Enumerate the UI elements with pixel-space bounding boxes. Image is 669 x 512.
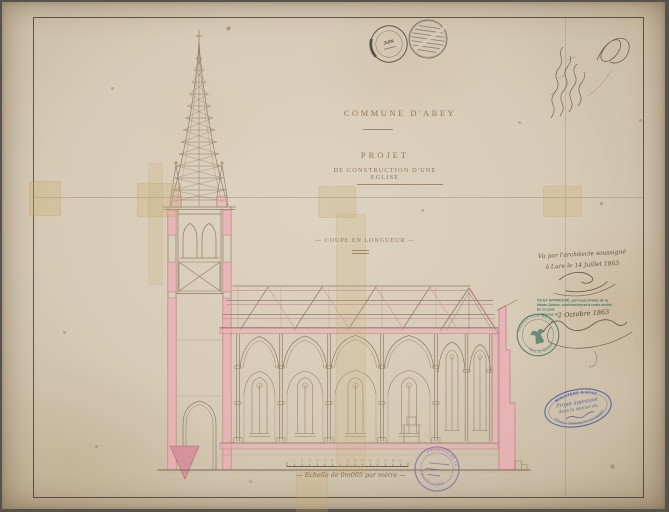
project-subtitle: DE CONSTRUCTION D'UNE EGLISE <box>322 167 448 181</box>
section-label-rule2 <box>352 253 369 254</box>
architect-note: Vu par l'architecte soussigné à Lure le … <box>538 248 629 297</box>
prefecture-stamp-date: 2 Octobre 1863 <box>557 308 610 320</box>
architect-note-line1: Vu par l'architecte soussigné <box>538 248 627 260</box>
scanned-drawing-sheet: 1 2 3 4 5 6 7 8 9 10 11 12 13 14 15 <box>0 0 669 512</box>
svg-text:HAUTE-SAÔNE: HAUTE-SAÔNE <box>417 469 447 491</box>
prefecture-seal: PRÉFECTURE DE LA HAUTE-SAÔNE <box>512 309 563 360</box>
archives-stamp-rim-bottom: HAUTE-SAÔNE <box>417 469 447 491</box>
archives-stamp-center-scribble <box>423 456 449 481</box>
commune-underline <box>363 129 393 130</box>
ministry-oval-stamp: MINISTÈRE D'ÉTAT CONSEIL GÉNÉRAL DES BÂT… <box>542 384 614 432</box>
prefect-signature-flourish <box>543 320 632 367</box>
architect-note-line2: à Lure le 14 Juillet 1863 <box>545 260 619 271</box>
paraph-flourish <box>597 38 629 63</box>
prefecture-approval-stamp: VU ET APPROUVÉ, par nous Préfet de la Ha… <box>537 298 612 320</box>
subtitle-underline <box>357 184 443 185</box>
handwritten-registration-note <box>549 38 629 118</box>
prefecture-stamp-line2: Haute-Saône, conformément à notre arrêté <box>537 303 612 307</box>
commune-title: COMMUNE D'ABEY <box>330 109 470 118</box>
postmark-round-stamp <box>407 18 450 61</box>
scale-caption: — Echelle de 0m005 par mètre — <box>293 471 409 479</box>
stamps-and-annotations: JUIN Vu par l'architecte soussigné à Lur… <box>0 0 669 512</box>
section-label-rule <box>352 250 369 251</box>
prefecture-stamp-line1: VU ET APPROUVÉ, par nous Préfet de la <box>537 298 609 303</box>
architect-signature-flourish <box>559 271 608 293</box>
section-label: — COUPE EN LONGUEUR — <box>308 238 422 245</box>
project-title: PROJET <box>352 151 418 160</box>
postmark-month: JUIN <box>383 38 395 46</box>
archives-round-stamp: ARCHIVES DE LA HAUTE-SAÔNE <box>408 440 467 499</box>
eagle-emblem <box>529 328 547 345</box>
prefecture-stamp-line3: de ce jour. <box>537 308 555 312</box>
postmark-date-stamp: JUIN <box>367 22 411 66</box>
